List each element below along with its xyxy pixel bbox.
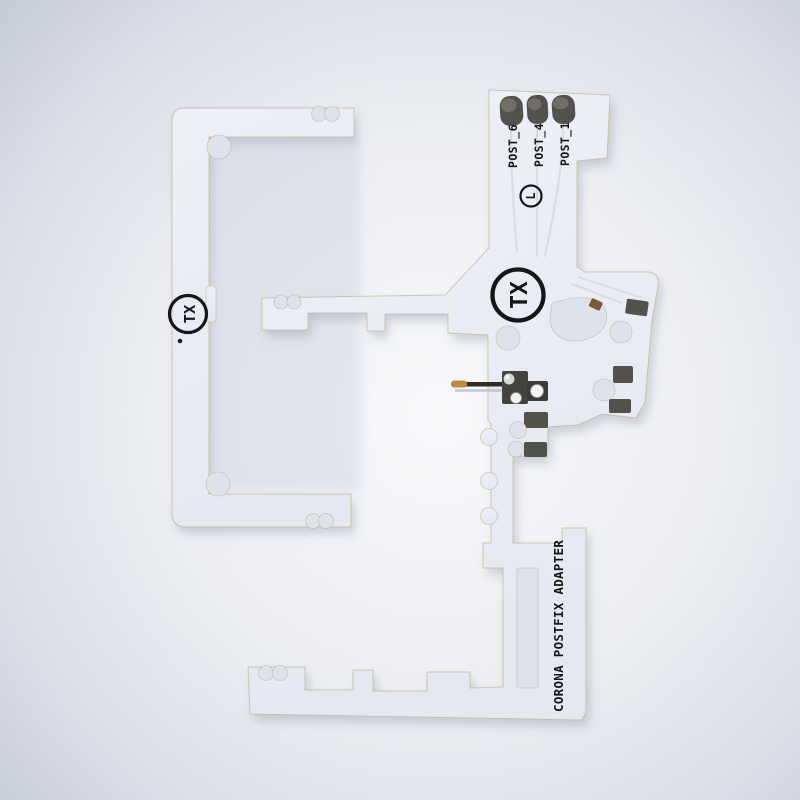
breakaway-stubs xyxy=(481,429,498,525)
board-title: CORONA POSTFIX ADAPTER xyxy=(551,540,566,712)
product-photo: POST_6 POST_4 POST_1 L TX TX CORONA POST… xyxy=(0,0,800,800)
post-1-label: POST_1 xyxy=(558,122,573,166)
slot-cutout xyxy=(517,568,538,688)
via-hole xyxy=(531,385,544,398)
fiducial-dot xyxy=(178,339,183,344)
tx-logo-rail-text: TX xyxy=(181,304,199,323)
post-4-pad xyxy=(526,94,548,124)
tx-logo-main-text: TX xyxy=(507,281,533,309)
solder-pin xyxy=(451,381,506,393)
post-6-pad xyxy=(499,95,524,126)
post-1-pad xyxy=(551,94,576,125)
post-4-label: POST_4 xyxy=(532,123,547,167)
photo-background xyxy=(0,0,800,800)
solder-highlight xyxy=(505,375,509,379)
circled-l-letter: L xyxy=(524,192,538,199)
pin-gold-tip xyxy=(451,381,467,388)
post-6-label: POST_6 xyxy=(506,124,521,168)
pcb-photo-svg: POST_6 POST_4 POST_1 L TX TX CORONA POST… xyxy=(0,0,800,800)
solder-blob xyxy=(504,374,515,385)
test-pads xyxy=(499,94,576,126)
via-hole xyxy=(511,393,522,404)
